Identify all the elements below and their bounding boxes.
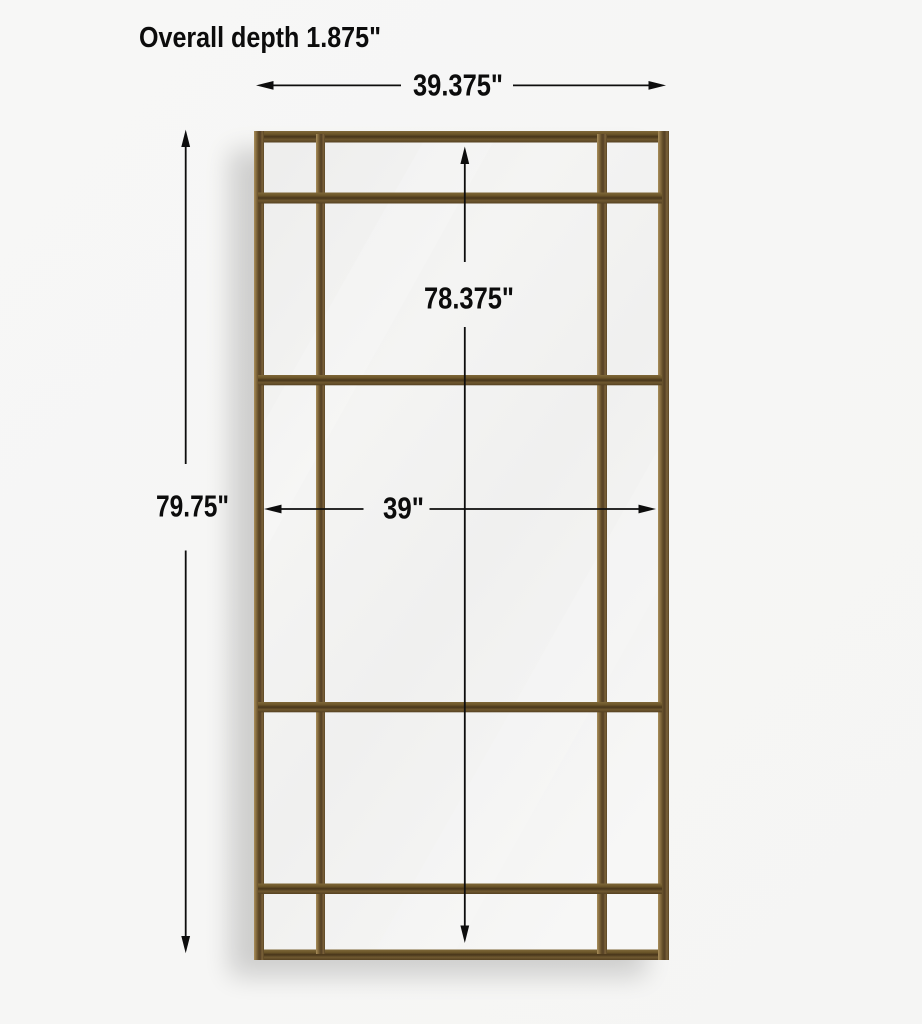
svg-text:39.375": 39.375"	[413, 68, 503, 103]
svg-text:Overall depth 1.875": Overall depth 1.875"	[139, 22, 381, 54]
svg-text:78.375": 78.375"	[424, 281, 514, 316]
svg-text:39": 39"	[383, 491, 424, 526]
svg-text:79.75": 79.75"	[156, 489, 229, 524]
